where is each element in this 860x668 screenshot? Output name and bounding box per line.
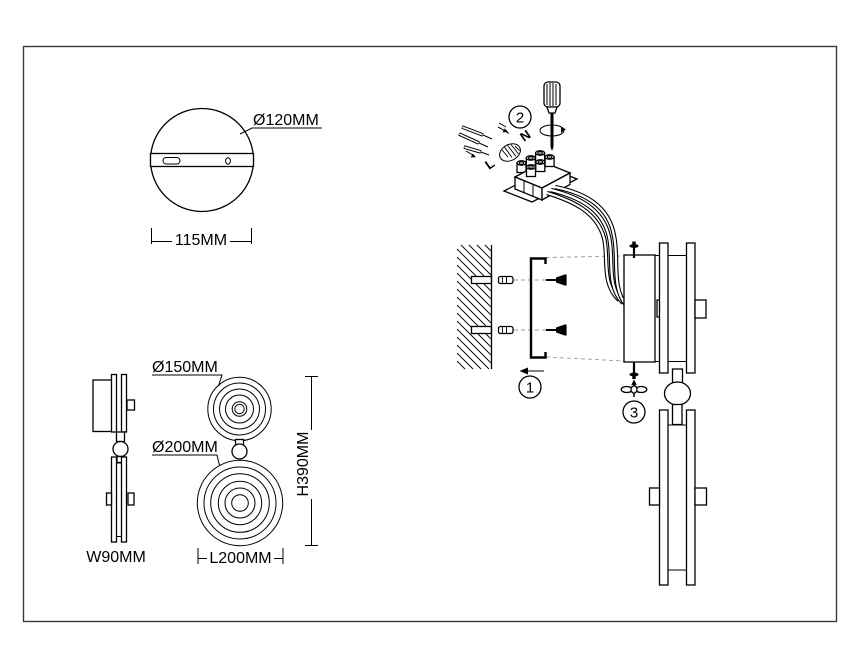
- upper-disc: [208, 377, 271, 440]
- fixing-screw-bottom: [629, 362, 638, 379]
- side-ball-joint: [113, 442, 128, 457]
- wall-anchors: [499, 277, 514, 334]
- fixture-body: [624, 255, 655, 362]
- assembly-step-2-wiring: 2: [459, 82, 577, 202]
- height-390-label: H390MM: [295, 432, 312, 497]
- mounting-screw-bottom: [546, 325, 567, 336]
- neutral-wire-label: N: [517, 127, 533, 145]
- installation-diagram: Ø120MM 115MM W90MM: [0, 0, 860, 668]
- fixture-assembly-side: 3: [547, 187, 707, 585]
- supply-wires: [547, 187, 627, 306]
- lower-disc-tab-right: [695, 488, 707, 505]
- installation-sheet: Ø120MM 115MM W90MM: [0, 0, 860, 668]
- length-200-dimension: L200MM: [198, 548, 283, 567]
- lower-disc: [197, 460, 282, 545]
- wall-lamp-front-view: Ø150MM Ø200MM L200MM H390MM: [152, 359, 318, 567]
- diameter-200-label: Ø200MM: [152, 439, 218, 456]
- assembly-step-1-wall-mounting: 1: [457, 245, 624, 398]
- wall-hole-top: [472, 277, 492, 284]
- width-90-label: W90MM: [86, 549, 146, 566]
- mounting-screw-top: [546, 275, 567, 286]
- mounting-bracket: [531, 259, 546, 358]
- step-2-number: 2: [516, 109, 524, 126]
- step-3-number: 3: [630, 404, 638, 421]
- sheet-border: [24, 47, 837, 622]
- upper-disc-tab: [695, 300, 706, 318]
- ball-joint: [665, 382, 691, 405]
- wing-nut: [621, 380, 647, 398]
- screwdriver: [540, 82, 566, 151]
- lower-disc-tab-left: [650, 488, 660, 505]
- width-115-label: 115MM: [175, 232, 227, 249]
- side-lower-tab-left: [107, 493, 112, 505]
- diameter-120-label: Ø120MM: [253, 112, 319, 129]
- height-390-dimension: H390MM: [295, 376, 318, 546]
- stripped-wires: [459, 127, 492, 155]
- step-1-number: 1: [526, 379, 534, 396]
- front-ball-joint: [232, 444, 247, 459]
- diameter-150-label: Ø150MM: [152, 359, 218, 376]
- live-wire-label: L: [482, 156, 497, 173]
- diameter-200-leader: [152, 455, 220, 466]
- side-lower-tab-right: [128, 493, 134, 505]
- plate-bracket-bar: [151, 154, 254, 167]
- width-115-dimension: 115MM: [152, 228, 252, 249]
- side-upper-tab: [127, 400, 135, 410]
- mounting-plate-top-view: Ø120MM 115MM: [151, 109, 323, 250]
- wall-lamp-side-view: W90MM: [86, 375, 146, 567]
- wall-section: [457, 245, 492, 369]
- length-200-label: L200MM: [209, 550, 271, 567]
- diameter-150-leader: [152, 375, 222, 386]
- wall-hole-bottom: [472, 327, 492, 334]
